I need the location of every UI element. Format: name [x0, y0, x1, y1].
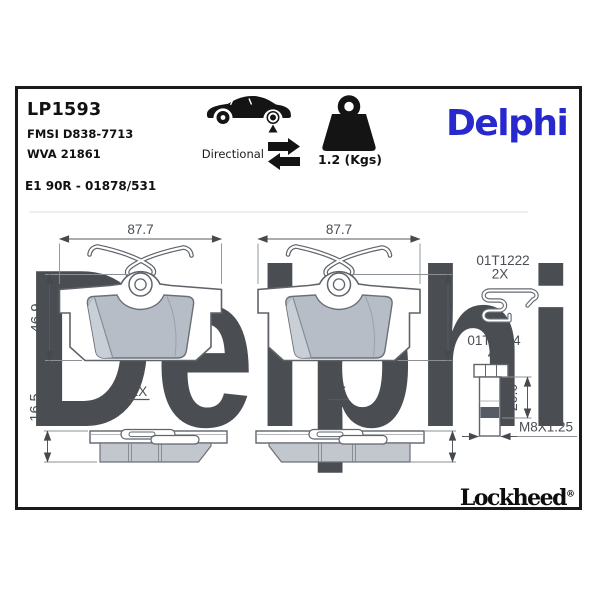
directional-label: Directional — [200, 147, 264, 161]
part-number: LP1593 — [27, 100, 101, 120]
lockheed-logo-text: Lockheed — [460, 485, 566, 511]
delphi-logo: Delphi — [446, 103, 576, 144]
catalog-page: { "header": { "part_number": "LP1593", "… — [0, 0, 600, 600]
ece-approval-number: E1 90R - 01878/531 — [25, 179, 156, 193]
wva-code: WVA 21861 — [27, 147, 101, 161]
weight-value-label: 1.2 (Kgs) — [314, 152, 386, 167]
registered-trademark-symbol: ® — [566, 490, 575, 500]
lockheed-logo: Lockheed® — [455, 485, 575, 511]
fmsi-code: FMSI D838-7713 — [27, 127, 133, 141]
